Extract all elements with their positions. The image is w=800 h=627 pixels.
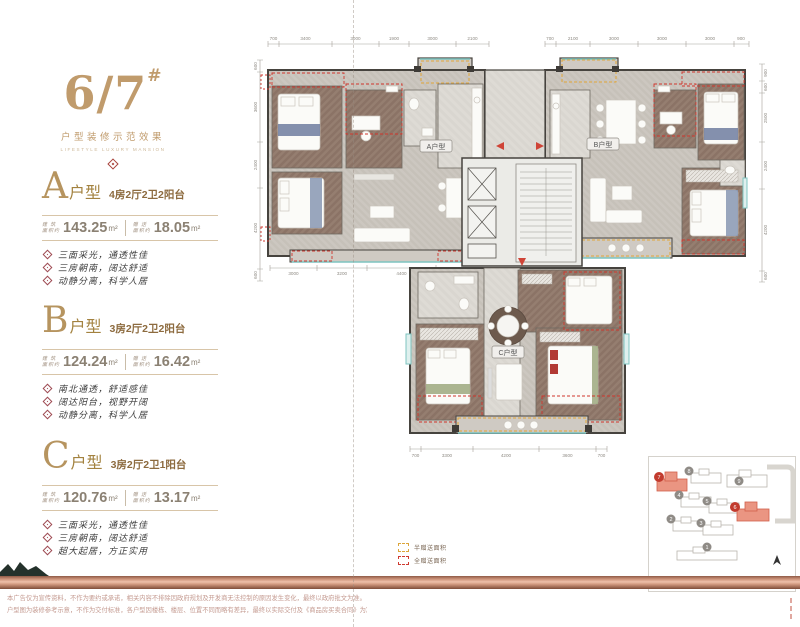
svg-text:2100: 2100	[467, 36, 478, 41]
diamond-bullet-icon	[43, 263, 53, 273]
disclaimer-line-1: 本广告仅为宣传资料，不作为要约或承诺，相关内容不排除因政府规划及开发商无法控制的…	[7, 594, 367, 603]
unit-a-gift-unit: m²	[191, 224, 200, 233]
diamond-bullet-icon	[43, 410, 53, 420]
site-plan: 7 8 9 4 5 6 2 3 1	[648, 456, 796, 592]
disclaimer-line-2: 户型图为装修参考示意，不作为交付标准，各户型因楼栋、楼层、位置不同而略有差异，最…	[7, 606, 367, 615]
red-dashed-box-icon	[398, 556, 409, 565]
brand-block: 6/7# 户型装修示范效果 LIFESTYLE LUXURY MANSION	[38, 50, 188, 168]
unit-c-area-label: 建 筑面积约	[42, 492, 60, 504]
svg-text:3000: 3000	[288, 271, 299, 276]
unit-c-area-unit: m²	[108, 494, 117, 503]
unit-a-features: 三面采光，通透性佳 三房朝南，阔达舒适 动静分离，科学人居	[42, 250, 218, 285]
svg-text:4400: 4400	[396, 271, 407, 276]
svg-text:2400: 2400	[253, 159, 258, 170]
svg-text:900: 900	[737, 36, 745, 41]
svg-text:3000: 3000	[705, 36, 716, 41]
feature-item: 阔达阳台，视野开阔	[42, 397, 218, 406]
diamond-ornament-icon	[107, 158, 118, 169]
diamond-bullet-icon	[43, 276, 53, 286]
unit-c-plan-label: C户型	[498, 348, 517, 357]
feature-item: 动静分离，科学人居	[42, 276, 218, 285]
legend-full-label: 全赠送面积	[414, 556, 447, 565]
feature-item: 三房朝南，阔达舒适	[42, 263, 218, 272]
unit-c-letter: C	[42, 440, 70, 474]
svg-text:600: 600	[763, 272, 768, 280]
unit-a-gift-label: 赠 送面积约	[133, 222, 151, 234]
unit-c-plan: C户型	[406, 268, 629, 433]
building-number-text: 6/7	[63, 66, 147, 120]
svg-text:5: 5	[705, 499, 708, 505]
diamond-bullet-icon	[43, 520, 53, 530]
svg-text:3300: 3300	[442, 453, 453, 458]
unit-a-plan-label: A户型	[427, 142, 446, 151]
floor-plan: 700 3400 3000 1900 3000 2100 700 2100 30…	[250, 28, 770, 467]
site-plan-svg: 7 8 9 4 5 6 2 3 1	[649, 457, 795, 591]
feature-item: 超大起居，方正实用	[42, 546, 218, 555]
disclaimer-block: 本广告仅为宣传资料，不作为要约或承诺，相关内容不排除因政府规划及开发商无法控制的…	[7, 594, 367, 618]
unit-a-block: A 户型 4房2厅2卫2阳台 建 筑面积约 143.25 m² 赠 送面积约 1…	[42, 170, 218, 289]
unit-c-area-value: 120.76	[63, 490, 107, 506]
svg-text:6: 6	[733, 505, 736, 511]
svg-text:2500: 2500	[763, 112, 768, 123]
svg-text:600: 600	[253, 271, 258, 279]
svg-text:3000: 3000	[657, 36, 668, 41]
svg-text:700: 700	[598, 453, 606, 458]
unit-b-area-row: 建 筑面积约 124.24 m² 赠 送面积约 16.42 m²	[42, 349, 218, 375]
unit-b-area-value: 124.24	[63, 354, 107, 370]
unit-b-features: 南北通透，舒适感佳 阔达阳台，视野开阔 动静分离，科学人居	[42, 384, 218, 419]
svg-text:7: 7	[657, 475, 660, 481]
unit-c-spec: 3房2厅2卫1阳台	[111, 448, 187, 482]
unit-c-gift-label: 赠 送面积约	[133, 492, 151, 504]
yellow-dashed-box-icon	[398, 543, 409, 552]
feature-item: 三面采光，通透性佳	[42, 520, 218, 529]
building-number-hash: #	[147, 66, 162, 86]
unit-b-gift-unit: m²	[191, 358, 200, 367]
diamond-bullet-icon	[43, 250, 53, 260]
fold-mark	[353, 0, 354, 627]
svg-text:600: 600	[253, 62, 258, 70]
svg-text:3600: 3600	[562, 453, 573, 458]
unit-c-gift-value: 13.17	[154, 490, 190, 506]
divider	[125, 354, 126, 370]
svg-text:3600: 3600	[253, 101, 258, 112]
svg-text:9: 9	[737, 479, 740, 485]
unit-b-header: B 户型 3房2厅2卫2阳台	[42, 304, 218, 346]
unit-a-header: A 户型 4房2厅2卫2阳台	[42, 170, 218, 212]
unit-b-spec: 3房2厅2卫2阳台	[109, 312, 185, 346]
svg-text:3000: 3000	[427, 36, 438, 41]
unit-c-area-row: 建 筑面积约 120.76 m² 赠 送面积约 13.17 m²	[42, 485, 218, 511]
svg-text:3200: 3200	[337, 271, 348, 276]
unit-b-suffix: 户型	[69, 311, 101, 345]
unit-a-area-label: 建 筑面积约	[42, 222, 60, 234]
svg-text:700: 700	[412, 453, 420, 458]
svg-text:4200: 4200	[501, 453, 512, 458]
divider	[125, 220, 126, 236]
unit-a-area-value: 143.25	[63, 220, 107, 236]
north-arrow-icon	[773, 555, 781, 565]
diamond-bullet-icon	[43, 533, 53, 543]
svg-text:700: 700	[546, 36, 554, 41]
unit-a-suffix: 户型	[69, 177, 101, 211]
svg-text:8: 8	[687, 469, 690, 475]
unit-c-features: 三面采光，通透性佳 三房朝南，阔达舒适 超大起居，方正实用	[42, 520, 218, 555]
svg-text:3000: 3000	[609, 36, 620, 41]
svg-text:4200: 4200	[253, 222, 258, 233]
floor-plan-svg: 700 3400 3000 1900 3000 2100 700 2100 30…	[250, 28, 770, 462]
unit-b-gift-label: 赠 送面积约	[133, 356, 151, 368]
diamond-bullet-icon	[43, 397, 53, 407]
svg-text:2400: 2400	[763, 160, 768, 171]
unit-c-gift-unit: m²	[191, 494, 200, 503]
unit-c-block: C 户型 3房2厅2卫1阳台 建 筑面积约 120.76 m² 赠 送面积约 1…	[42, 440, 218, 559]
svg-text:1900: 1900	[389, 36, 400, 41]
brand-subtitle: 户型装修示范效果	[38, 129, 188, 143]
unit-b-gift-value: 16.42	[154, 354, 190, 370]
feature-item: 三房朝南，阔达舒适	[42, 533, 218, 542]
unit-a-gift-value: 18.05	[154, 220, 190, 236]
copper-divider-bar	[0, 576, 800, 589]
svg-text:3400: 3400	[300, 36, 311, 41]
svg-text:2100: 2100	[568, 36, 579, 41]
plan-legend: 半赠送面积 全赠送面积	[398, 543, 447, 569]
unit-b-plan-label: B户型	[594, 140, 613, 149]
brochure-page: 6/7# 户型装修示范效果 LIFESTYLE LUXURY MANSION A…	[0, 0, 800, 627]
unit-a-area-unit: m²	[108, 224, 117, 233]
diamond-bullet-icon	[43, 546, 53, 556]
unit-c-suffix: 户型	[71, 447, 103, 481]
svg-text:900: 900	[763, 69, 768, 77]
unit-a-area-row: 建 筑面积约 143.25 m² 赠 送面积约 18.05 m²	[42, 215, 218, 241]
legend-half-label: 半赠送面积	[414, 543, 447, 552]
building-number: 6/7#	[38, 50, 188, 119]
svg-text:600: 600	[763, 83, 768, 91]
unit-c-header: C 户型 3房2厅2卫1阳台	[42, 440, 218, 482]
svg-text:4: 4	[677, 493, 680, 499]
feature-item: 南北通透，舒适感佳	[42, 384, 218, 393]
unit-a-spec: 4房2厅2卫2阳台	[109, 178, 185, 212]
legend-half-gift: 半赠送面积	[398, 543, 447, 552]
diamond-bullet-icon	[43, 384, 53, 394]
svg-text:3: 3	[699, 521, 702, 527]
svg-text:3000: 3000	[350, 36, 361, 41]
unit-b-area-label: 建 筑面积约	[42, 356, 60, 368]
svg-text:2: 2	[669, 517, 672, 523]
feature-item: 三面采光，通透性佳	[42, 250, 218, 259]
crop-marks	[790, 595, 792, 622]
feature-item: 动静分离，科学人居	[42, 410, 218, 419]
unit-b-area-unit: m²	[108, 358, 117, 367]
svg-text:700: 700	[270, 36, 278, 41]
svg-text:4200: 4200	[763, 224, 768, 235]
unit-b-block: B 户型 3房2厅2卫2阳台 建 筑面积约 124.24 m² 赠 送面积约 1…	[42, 304, 218, 423]
unit-a-plan: A户型	[261, 58, 485, 262]
unit-b-letter: B	[42, 304, 68, 338]
unit-a-letter: A	[42, 170, 68, 204]
svg-text:1: 1	[705, 545, 708, 551]
legend-full-gift: 全赠送面积	[398, 556, 447, 565]
brand-subtitle-en: LIFESTYLE LUXURY MANSION	[38, 147, 188, 152]
divider	[125, 490, 126, 506]
